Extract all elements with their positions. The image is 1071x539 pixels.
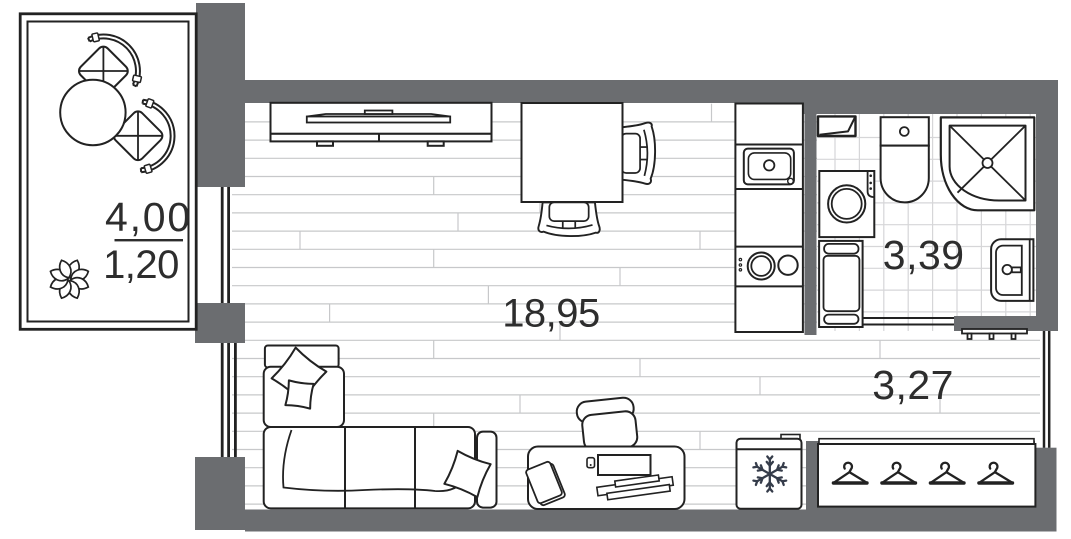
svg-text:3,27: 3,27 xyxy=(872,362,954,408)
svg-text:1,20: 1,20 xyxy=(103,243,179,287)
svg-text:18,95: 18,95 xyxy=(502,291,600,335)
svg-text:3,39: 3,39 xyxy=(883,232,965,278)
svg-text:4,00: 4,00 xyxy=(105,194,192,240)
